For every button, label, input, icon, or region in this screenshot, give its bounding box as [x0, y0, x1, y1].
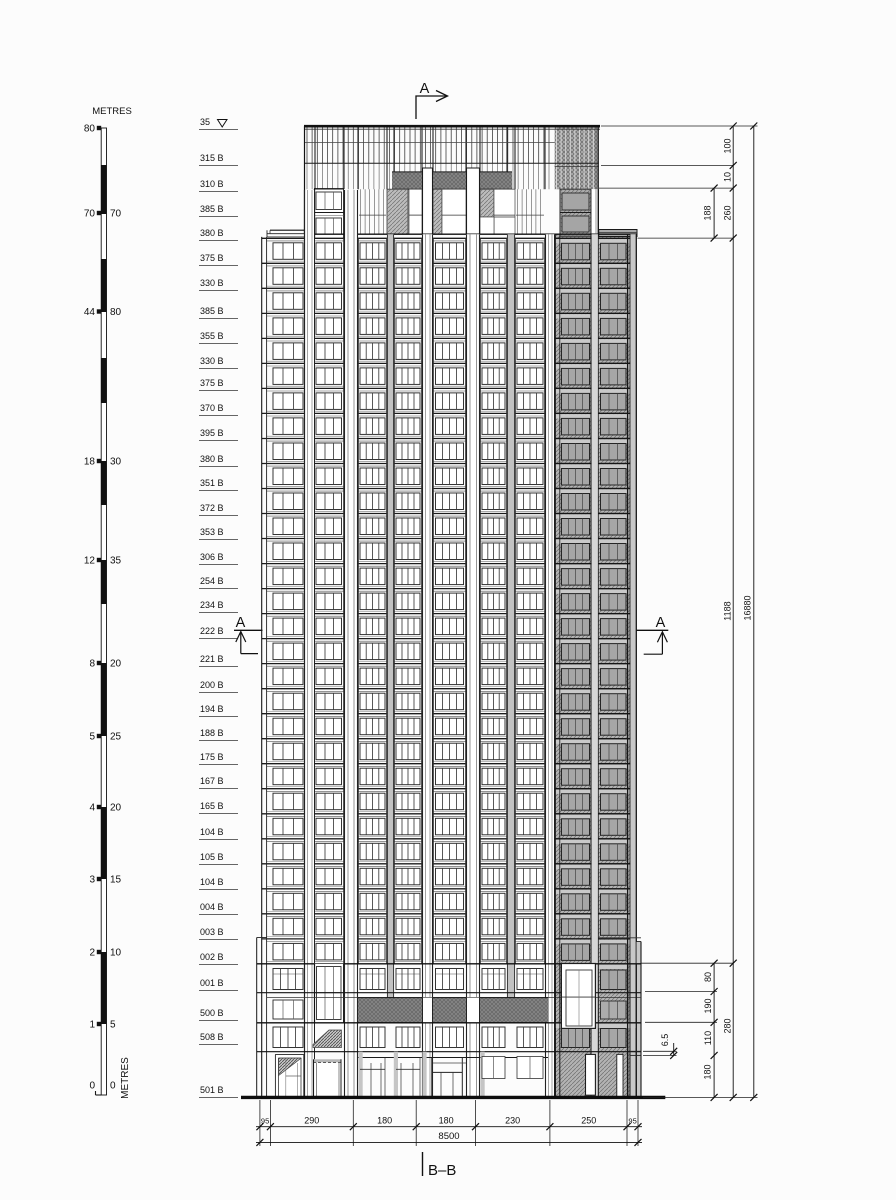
svg-text:175 B: 175 B: [200, 752, 224, 762]
svg-text:80: 80: [84, 124, 96, 135]
svg-text:110: 110: [703, 1031, 713, 1045]
svg-text:6.5: 6.5: [660, 1034, 670, 1047]
svg-text:372 B: 372 B: [200, 503, 224, 513]
svg-text:104 B: 104 B: [200, 827, 224, 837]
svg-text:200 B: 200 B: [200, 680, 224, 690]
svg-text:315 B: 315 B: [200, 153, 224, 163]
svg-text:004 B: 004 B: [200, 902, 224, 912]
svg-text:95: 95: [628, 1117, 636, 1126]
svg-text:351 B: 351 B: [200, 478, 224, 488]
svg-text:12: 12: [84, 556, 96, 567]
svg-text:8: 8: [89, 659, 95, 670]
svg-text:0: 0: [110, 1081, 116, 1092]
svg-text:15: 15: [110, 875, 122, 886]
svg-text:254 B: 254 B: [200, 576, 224, 586]
svg-text:280: 280: [723, 1018, 733, 1033]
svg-text:375 B: 375 B: [200, 253, 224, 263]
svg-text:385 B: 385 B: [200, 204, 224, 214]
svg-text:188 B: 188 B: [200, 728, 224, 738]
svg-text:188: 188: [703, 205, 713, 220]
svg-text:194 B: 194 B: [200, 704, 224, 714]
svg-text:METRES: METRES: [120, 1057, 131, 1099]
svg-text:1188: 1188: [723, 601, 733, 620]
svg-text:180: 180: [439, 1116, 454, 1126]
svg-text:A: A: [420, 81, 430, 97]
svg-text:167 B: 167 B: [200, 776, 224, 786]
svg-text:2: 2: [89, 948, 95, 959]
svg-text:0: 0: [89, 1081, 95, 1092]
svg-text:35: 35: [200, 117, 210, 127]
svg-text:B–B: B–B: [428, 1162, 456, 1179]
svg-text:10: 10: [110, 948, 122, 959]
svg-text:100: 100: [723, 138, 733, 153]
svg-text:190: 190: [703, 998, 713, 1013]
svg-text:20: 20: [110, 803, 122, 814]
svg-text:375 B: 375 B: [200, 378, 224, 388]
svg-text:METRES: METRES: [92, 106, 132, 117]
svg-text:95: 95: [261, 1117, 269, 1126]
svg-text:18: 18: [84, 457, 96, 468]
svg-text:5: 5: [110, 1020, 116, 1031]
svg-text:500 B: 500 B: [200, 1008, 224, 1018]
svg-text:1: 1: [89, 1020, 95, 1031]
svg-text:30: 30: [110, 457, 122, 468]
svg-text:234 B: 234 B: [200, 600, 224, 610]
svg-text:370 B: 370 B: [200, 403, 224, 413]
svg-text:260: 260: [723, 205, 733, 220]
svg-text:A: A: [236, 615, 246, 631]
svg-text:104 B: 104 B: [200, 877, 224, 887]
svg-text:16880: 16880: [743, 595, 753, 620]
svg-text:353 B: 353 B: [200, 527, 224, 537]
svg-text:5: 5: [89, 732, 95, 743]
svg-text:20: 20: [110, 659, 122, 670]
svg-text:A: A: [656, 615, 666, 631]
svg-text:25: 25: [110, 732, 122, 743]
svg-text:001 B: 001 B: [200, 978, 224, 988]
svg-text:105 B: 105 B: [200, 852, 224, 862]
svg-text:3: 3: [89, 875, 95, 886]
svg-text:10: 10: [723, 172, 733, 182]
svg-text:380 B: 380 B: [200, 228, 224, 238]
svg-text:290: 290: [304, 1116, 319, 1126]
svg-text:222 B: 222 B: [200, 626, 224, 636]
svg-text:310 B: 310 B: [200, 179, 224, 189]
svg-text:380 B: 380 B: [200, 454, 224, 464]
svg-text:395 B: 395 B: [200, 428, 224, 438]
svg-text:80: 80: [703, 972, 713, 982]
svg-text:385 B: 385 B: [200, 306, 224, 316]
svg-text:80: 80: [110, 307, 122, 318]
svg-text:8500: 8500: [438, 1131, 459, 1142]
svg-text:4: 4: [89, 803, 95, 814]
svg-text:330 B: 330 B: [200, 278, 224, 288]
svg-text:70: 70: [84, 209, 96, 220]
svg-text:508 B: 508 B: [200, 1032, 224, 1042]
svg-text:003 B: 003 B: [200, 927, 224, 937]
svg-text:250: 250: [581, 1116, 596, 1126]
svg-text:230: 230: [505, 1116, 520, 1126]
svg-text:44: 44: [84, 307, 96, 318]
svg-text:180: 180: [703, 1064, 713, 1079]
svg-text:221 B: 221 B: [200, 654, 224, 664]
svg-text:306 B: 306 B: [200, 552, 224, 562]
svg-text:70: 70: [110, 209, 122, 220]
svg-text:35: 35: [110, 556, 122, 567]
svg-text:355 B: 355 B: [200, 331, 224, 341]
svg-text:165 B: 165 B: [200, 801, 224, 811]
svg-text:180: 180: [377, 1116, 392, 1126]
svg-text:330 B: 330 B: [200, 356, 224, 366]
svg-text:501 B: 501 B: [200, 1085, 224, 1095]
svg-text:002 B: 002 B: [200, 952, 224, 962]
